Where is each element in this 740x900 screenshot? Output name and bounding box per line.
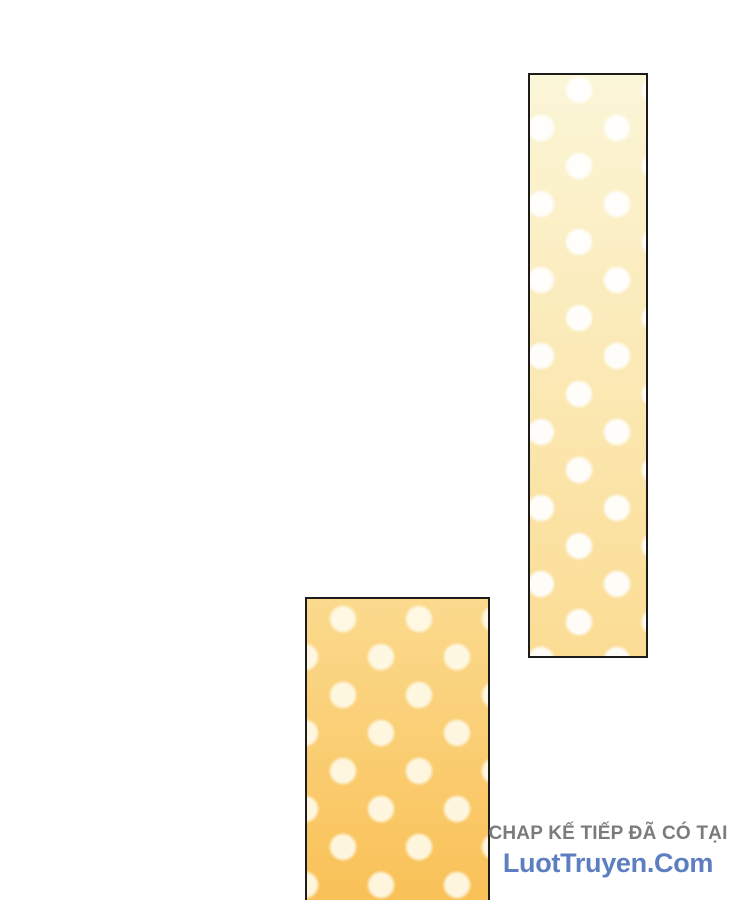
polka-dot-panel-bottom	[305, 597, 490, 900]
polka-dot-panel-tall	[528, 73, 648, 658]
watermark-next-chapter-text: CHAP KẾ TIẾP ĐÃ CÓ TẠI	[486, 822, 730, 846]
watermark: CHAP KẾ TIẾP ĐÃ CÓ TẠI LuotTruyen.Com	[486, 822, 730, 879]
watermark-site-name: LuotTruyen.Com	[486, 847, 730, 879]
comic-page: CHAP KẾ TIẾP ĐÃ CÓ TẠI LuotTruyen.Com	[0, 0, 740, 900]
